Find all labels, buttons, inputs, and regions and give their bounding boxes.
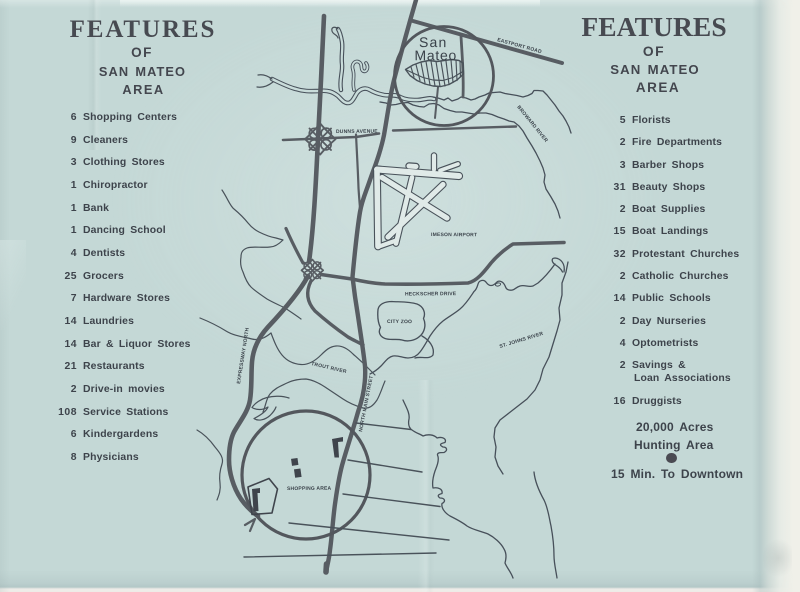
svg-text:IMESON AIRPORT: IMESON AIRPORT [431, 232, 477, 238]
svg-text:ST. JOHNS RIVER: ST. JOHNS RIVER [499, 331, 544, 350]
svg-text:TROUT RIVER: TROUT RIVER [311, 361, 348, 375]
svg-text:BROWARD RIVER: BROWARD RIVER [515, 104, 549, 143]
svg-text:CITY ZOO: CITY ZOO [387, 319, 412, 325]
svg-text:Mateo: Mateo [414, 47, 456, 63]
svg-text:SHOPPING AREA: SHOPPING AREA [287, 486, 332, 492]
svg-text:DUNNS AVENUE: DUNNS AVENUE [336, 129, 378, 135]
svg-text:HECKSCHER DRIVE: HECKSCHER DRIVE [405, 291, 457, 297]
